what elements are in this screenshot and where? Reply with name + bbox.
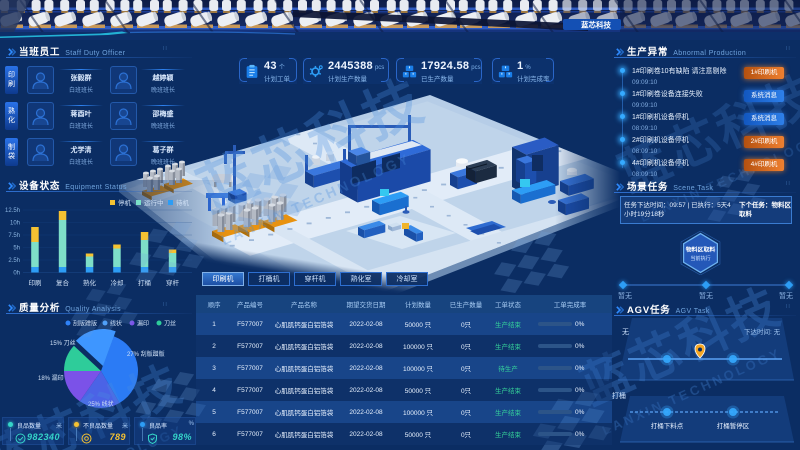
svg-text:打桶暂停区: 打桶暂停区 bbox=[717, 421, 750, 430]
svg-text:7.5h: 7.5h bbox=[8, 233, 20, 239]
svg-text:当前执行: 当前执行 bbox=[690, 255, 710, 262]
svg-text:漏印: 漏印 bbox=[137, 320, 149, 328]
svg-text:15% 刀丝: 15% 刀丝 bbox=[50, 339, 76, 347]
svg-text:下达时间: 无: 下达时间: 无 bbox=[744, 327, 781, 336]
svg-text:停机: 停机 bbox=[118, 198, 132, 207]
svg-text:刮版蹭版: 刮版蹭版 bbox=[73, 320, 97, 328]
svg-text:打桶: 打桶 bbox=[612, 391, 626, 400]
svg-text:蓝芯科技: 蓝芯科技 bbox=[581, 20, 611, 30]
svg-text:打桶: 打桶 bbox=[138, 278, 151, 287]
svg-text:27% 刮版蹭版: 27% 刮版蹭版 bbox=[127, 350, 165, 358]
svg-text:冷却: 冷却 bbox=[111, 278, 124, 287]
svg-text:打桶下料点: 打桶下料点 bbox=[651, 421, 684, 430]
svg-text:熟化: 熟化 bbox=[83, 278, 97, 287]
svg-text:18% 漏印: 18% 漏印 bbox=[38, 374, 64, 382]
svg-text:2.5h: 2.5h bbox=[8, 258, 20, 264]
svg-text:运行中: 运行中 bbox=[144, 198, 164, 207]
svg-text:0h: 0h bbox=[13, 271, 20, 277]
svg-text:10h: 10h bbox=[10, 221, 20, 227]
svg-text:印刷: 印刷 bbox=[29, 279, 42, 287]
svg-text:复合: 复合 bbox=[56, 278, 70, 287]
svg-text:5h: 5h bbox=[13, 246, 20, 252]
svg-text:25% 线状: 25% 线状 bbox=[88, 400, 114, 408]
svg-text:刀丝: 刀丝 bbox=[164, 320, 176, 328]
svg-text:无: 无 bbox=[622, 328, 629, 336]
svg-text:线状: 线状 bbox=[110, 320, 122, 328]
svg-text:待机: 待机 bbox=[176, 198, 190, 207]
svg-text:物料区取料: 物料区取料 bbox=[686, 245, 716, 253]
svg-text:穿杆: 穿杆 bbox=[166, 278, 180, 287]
svg-text:12.5h: 12.5h bbox=[5, 208, 20, 214]
